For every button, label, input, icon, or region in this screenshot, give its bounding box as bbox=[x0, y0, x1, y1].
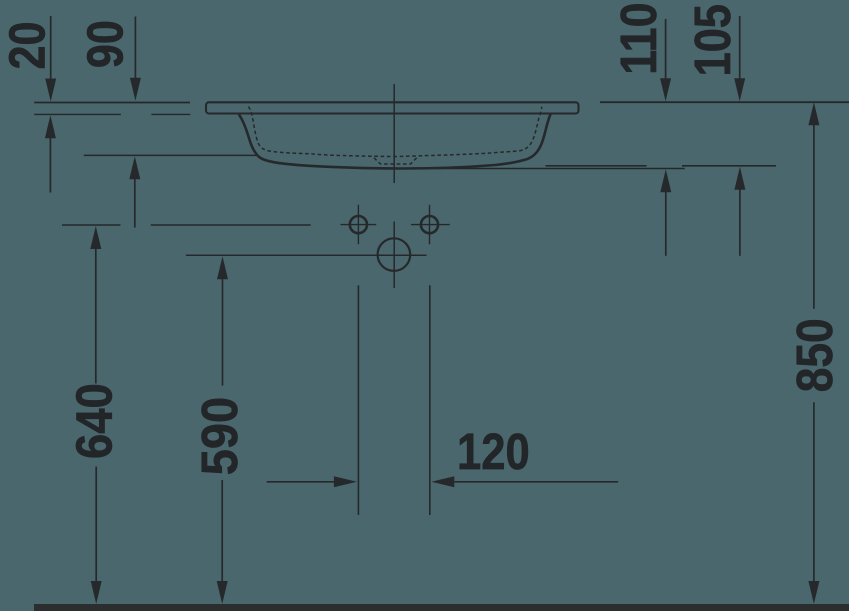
svg-text:105: 105 bbox=[685, 4, 742, 76]
svg-text:640: 640 bbox=[66, 383, 123, 459]
svg-text:590: 590 bbox=[192, 397, 248, 475]
svg-text:110: 110 bbox=[612, 2, 668, 74]
svg-text:120: 120 bbox=[457, 424, 530, 481]
svg-text:90: 90 bbox=[77, 20, 134, 68]
svg-text:20: 20 bbox=[0, 22, 57, 70]
svg-text:850: 850 bbox=[787, 318, 844, 392]
